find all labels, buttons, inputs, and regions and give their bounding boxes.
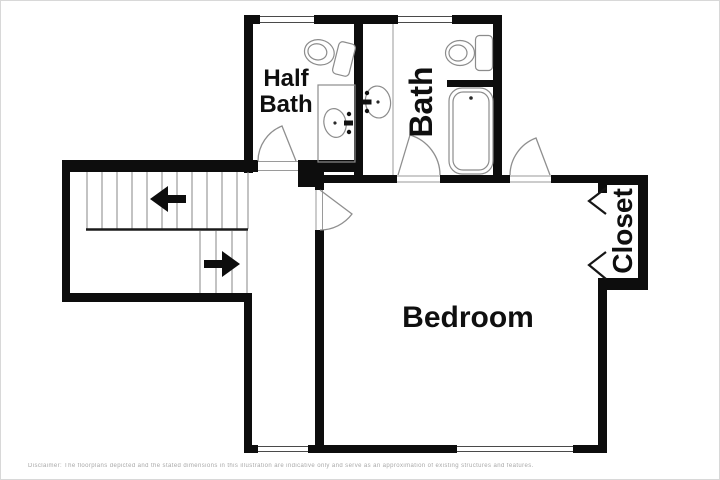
half-bath-label: Bath <box>259 91 312 118</box>
wall <box>603 278 648 290</box>
door-opening <box>258 162 298 171</box>
window-icon <box>260 15 314 24</box>
wall <box>493 15 502 183</box>
bedroom-label: Bedroom <box>402 301 534 334</box>
floorplan-drawing: Half Bath Bath Bedroom Closet <box>0 0 720 480</box>
wall <box>324 175 397 183</box>
wall <box>598 278 607 453</box>
door-swing-icon <box>320 190 352 230</box>
wall <box>308 445 457 453</box>
floorplan-canvas: Half Bath Bath Bedroom Closet Disclaimer… <box>0 0 720 480</box>
closet-label: Closet <box>607 188 638 274</box>
door-swing-icon <box>258 126 296 161</box>
disclaimer-text: Disclaimer: The floorplans depicted and … <box>28 463 708 469</box>
wall <box>638 175 648 290</box>
sink-icon <box>321 107 353 140</box>
toilet-icon <box>301 33 357 77</box>
wall <box>62 160 70 302</box>
wall <box>315 160 324 190</box>
bifold-door-icon <box>589 252 606 279</box>
door-swing-icon <box>398 135 440 175</box>
wall <box>62 160 258 172</box>
window-icon <box>398 15 452 24</box>
wall <box>315 230 324 445</box>
staircase <box>86 172 248 293</box>
toilet-icon <box>446 36 493 71</box>
stairs-right-arrow-icon <box>204 251 240 277</box>
sink-icon <box>363 84 393 119</box>
fixtures <box>301 24 606 279</box>
wall <box>62 293 252 302</box>
bath-label: Bath <box>403 66 439 137</box>
wall <box>244 293 252 453</box>
door-opening <box>397 176 440 182</box>
wall <box>440 175 510 183</box>
wall <box>244 445 258 453</box>
door-opening <box>510 176 551 182</box>
bathtub-icon <box>449 88 493 174</box>
door-opening <box>316 190 323 230</box>
window-icon <box>258 445 308 453</box>
window-icon <box>457 445 573 453</box>
door-swing-icon <box>510 138 550 175</box>
wall <box>244 15 253 173</box>
half-bath-label: Half <box>263 65 309 92</box>
walls <box>62 15 648 453</box>
stairs-left-arrow-icon <box>150 186 186 212</box>
wall <box>447 80 502 87</box>
